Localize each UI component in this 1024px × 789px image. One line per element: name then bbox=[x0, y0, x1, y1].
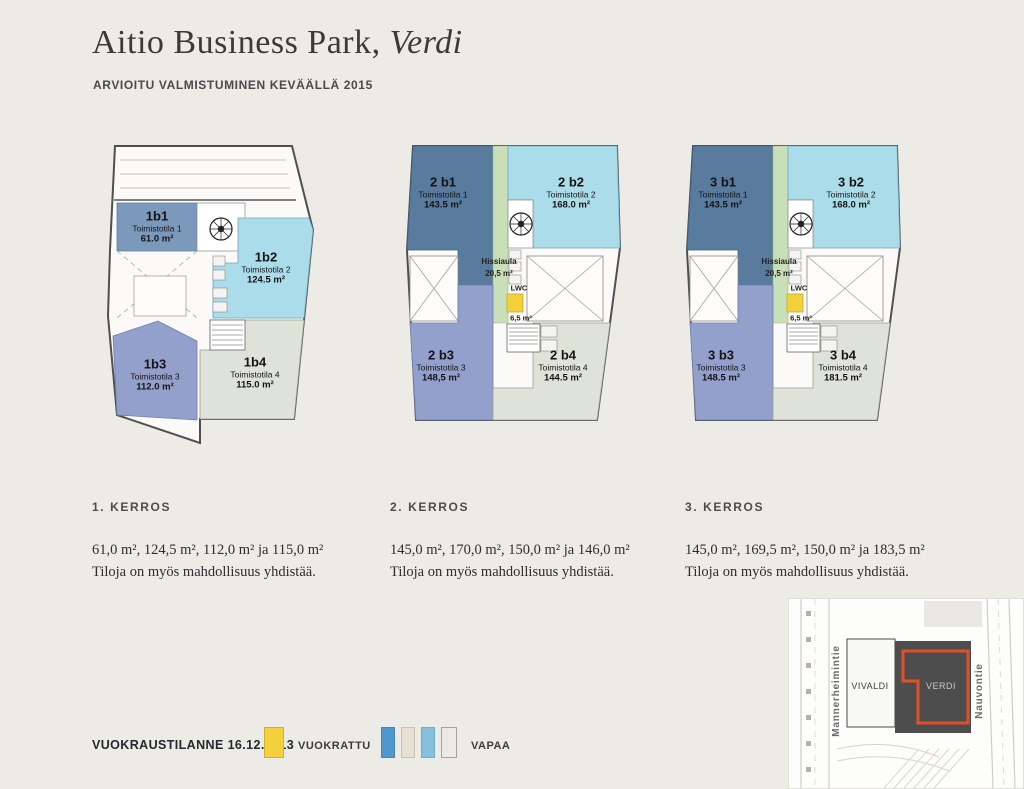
unit-area: 144.5 m² bbox=[538, 373, 587, 384]
unit-name: Toimistotila 1 bbox=[132, 224, 181, 234]
hissiaula-region bbox=[493, 146, 508, 323]
lwc-area: 6,5 m² bbox=[790, 314, 812, 323]
lwc-label: LWC bbox=[791, 284, 808, 293]
floor-note: Tiloja on myös mahdollisuus yhdistää. bbox=[92, 564, 323, 581]
unit-label-1b3: 1b3 Toimistotila 3 112.0 m² bbox=[130, 357, 179, 394]
unit-label-1b1: 1b1 Toimistotila 1 61.0 m² bbox=[132, 209, 181, 246]
vivaldi-label: VIVALDI bbox=[851, 681, 888, 691]
floor-areas: 145,0 m², 170,0 m², 150,0 m² ja 146,0 m² bbox=[390, 542, 630, 559]
free-label: VAPAA bbox=[471, 740, 510, 752]
floor-plan-3: 3 b1 Toimistotila 1 143.5 m² 3 b2 Toimis… bbox=[675, 138, 915, 448]
hissiaula-region bbox=[773, 146, 788, 323]
floor-heading: 1. KERROS bbox=[92, 500, 323, 514]
unit-code: 1b1 bbox=[132, 209, 181, 224]
unit-name: Toimistotila 4 bbox=[230, 370, 279, 380]
unit-name: Toimistotila 3 bbox=[416, 363, 465, 373]
unit-name: Toimistotila 2 bbox=[546, 190, 595, 200]
page-title: Aitio Business Park, Verdi bbox=[92, 24, 463, 62]
unit-label-1b4: 1b4 Toimistotila 4 115.0 m² bbox=[230, 355, 279, 392]
tree-row bbox=[806, 611, 811, 772]
unit-code: 3 b3 bbox=[696, 348, 745, 363]
unit-area: 115.0 m² bbox=[230, 380, 279, 391]
unit-label-3b1: 3 b1 Toimistotila 1 143.5 m² bbox=[698, 175, 747, 212]
page-title-italic: Verdi bbox=[390, 24, 463, 61]
unit-code: 3 b1 bbox=[698, 175, 747, 190]
unit-name: Toimistotila 1 bbox=[698, 190, 747, 200]
unit-area: 181.5 m² bbox=[818, 373, 867, 384]
unit-code: 3 b4 bbox=[818, 348, 867, 363]
unit-label-3b2: 3 b2 Toimistotila 2 168.0 m² bbox=[826, 175, 875, 212]
unit-name: Toimistotila 2 bbox=[826, 190, 875, 200]
map-block bbox=[924, 601, 982, 627]
unit-area: 143.5 m² bbox=[698, 200, 747, 211]
unit-label-2b3: 2 b3 Toimistotila 3 148,5 m² bbox=[416, 348, 465, 385]
floor-areas: 61,0 m², 124,5 m², 112,0 m² ja 115,0 m² bbox=[92, 542, 323, 559]
unit-code: 1b3 bbox=[130, 357, 179, 372]
hissiaula-area: 20,5 m² bbox=[761, 268, 796, 280]
floor-plan-1-drawing bbox=[100, 138, 340, 448]
unit-label-1b2: 1b2 Toimistotila 2 124.5 m² bbox=[241, 250, 290, 287]
unit-name: Toimistotila 1 bbox=[418, 190, 467, 200]
unit-area: 148,5 m² bbox=[416, 373, 465, 384]
spiral-stair-icon bbox=[790, 213, 812, 235]
legend-swatch-rented bbox=[264, 727, 284, 758]
floor-heading: 2. KERROS bbox=[390, 500, 630, 514]
unit-code: 1b4 bbox=[230, 355, 279, 370]
hissiaula-name: Hissiaula bbox=[761, 256, 796, 268]
unit-code: 1b2 bbox=[241, 250, 290, 265]
unit-area: 61.0 m² bbox=[132, 234, 181, 245]
hatched-area bbox=[884, 749, 969, 788]
verdi-label: VERDI bbox=[926, 681, 956, 691]
floor-areas: 145,0 m², 169,5 m², 150,0 m² ja 183,5 m² bbox=[685, 542, 925, 559]
brochure-page: Aitio Business Park, Verdi ARVIOITU VALM… bbox=[0, 0, 1024, 789]
summary-floor-1: 1. KERROS 61,0 m², 124,5 m², 112,0 m² ja… bbox=[92, 500, 323, 581]
site-map-drawing: VIVALDI VERDI Mannerheimintie Nauvontie bbox=[789, 599, 1023, 788]
unit-area: 124.5 m² bbox=[241, 275, 290, 286]
unit-name: Toimistotila 3 bbox=[130, 372, 179, 382]
unit-name: Toimistotila 2 bbox=[241, 265, 290, 275]
unit-area: 112.0 m² bbox=[130, 382, 179, 393]
legend-swatch-free-beige bbox=[401, 727, 415, 758]
unit-area: 148.5 m² bbox=[696, 373, 745, 384]
summary-floor-3: 3. KERROS 145,0 m², 169,5 m², 150,0 m² j… bbox=[685, 500, 925, 581]
unit-code: 3 b2 bbox=[826, 175, 875, 190]
floor-heading: 3. KERROS bbox=[685, 500, 925, 514]
unit-area: 143.5 m² bbox=[418, 200, 467, 211]
hissiaula-name: Hissiaula bbox=[481, 256, 516, 268]
unit-code: 2 b3 bbox=[416, 348, 465, 363]
lwc-label: LWC bbox=[511, 284, 528, 293]
unit-area: 168.0 m² bbox=[826, 200, 875, 211]
unit-name: Toimistotila 4 bbox=[538, 363, 587, 373]
page-subtitle: ARVIOITU VALMISTUMINEN KEVÄÄLLÄ 2015 bbox=[93, 78, 373, 92]
floor-note: Tiloja on myös mahdollisuus yhdistää. bbox=[390, 564, 630, 581]
street-label-nauvontie: Nauvontie bbox=[974, 663, 985, 719]
unit-area: 168.0 m² bbox=[546, 200, 595, 211]
legend-swatch-free-lightblue bbox=[421, 727, 435, 758]
spiral-stair-icon bbox=[210, 218, 232, 240]
unit-name: Toimistotila 4 bbox=[818, 363, 867, 373]
rented-label: VUOKRATTU bbox=[298, 740, 371, 752]
page-title-main: Aitio Business Park, bbox=[92, 24, 381, 61]
legend-swatch-free-gray bbox=[441, 727, 457, 758]
unit-label-3b4: 3 b4 Toimistotila 4 181.5 m² bbox=[818, 348, 867, 385]
unit-code: 2 b1 bbox=[418, 175, 467, 190]
spiral-stair-icon bbox=[510, 213, 532, 235]
unit-label-2b4: 2 b4 Toimistotila 4 144.5 m² bbox=[538, 348, 587, 385]
hissiaula-area: 20,5 m² bbox=[481, 268, 516, 280]
hissiaula-label: Hissiaula 20,5 m² bbox=[761, 256, 796, 280]
unit-label-2b2: 2 b2 Toimistotila 2 168.0 m² bbox=[546, 175, 595, 212]
legend-swatch-free-blue bbox=[381, 727, 395, 758]
floor-plan-2: 2 b1 Toimistotila 1 143.5 m² 2 b2 Toimis… bbox=[395, 138, 635, 448]
floor-plan-1: 1b1 Toimistotila 1 61.0 m² 1b2 Toimistot… bbox=[100, 138, 340, 448]
unit-code: 2 b4 bbox=[538, 348, 587, 363]
unit-label-3b3: 3 b3 Toimistotila 3 148.5 m² bbox=[696, 348, 745, 385]
lwc-rented-region bbox=[787, 294, 803, 312]
hissiaula-label: Hissiaula 20,5 m² bbox=[481, 256, 516, 280]
floor-note: Tiloja on myös mahdollisuus yhdistää. bbox=[685, 564, 925, 581]
lwc-rented-region bbox=[507, 294, 523, 312]
street-label-mannerheimintie: Mannerheimintie bbox=[831, 645, 842, 736]
summary-floor-2: 2. KERROS 145,0 m², 170,0 m², 150,0 m² j… bbox=[390, 500, 630, 581]
unit-code: 2 b2 bbox=[546, 175, 595, 190]
lwc-area: 6,5 m² bbox=[510, 314, 532, 323]
site-map-inset: VIVALDI VERDI Mannerheimintie Nauvontie bbox=[788, 598, 1024, 789]
unit-label-2b1: 2 b1 Toimistotila 1 143.5 m² bbox=[418, 175, 467, 212]
unit-name: Toimistotila 3 bbox=[696, 363, 745, 373]
